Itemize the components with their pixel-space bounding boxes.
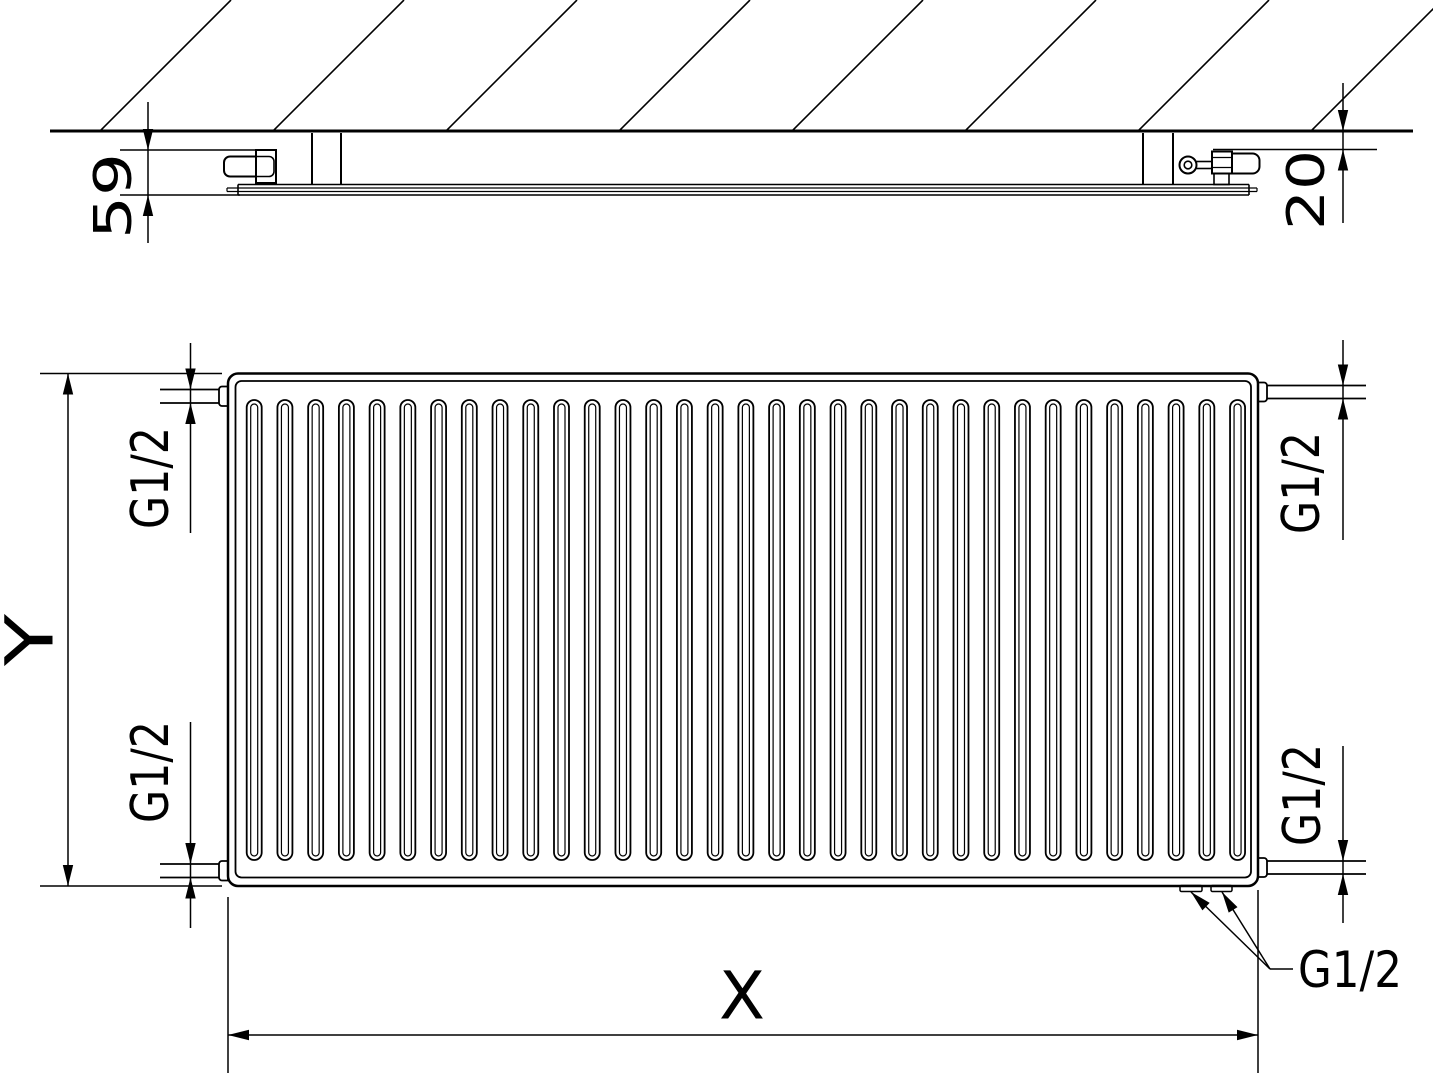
wall-gap-dim-label: 20 — [1277, 150, 1337, 230]
thread-bottom-tappings-label: G1/2 — [1298, 941, 1402, 999]
height-dim-label: Y — [0, 613, 69, 667]
thread-dim-top-right-label: G1/2 — [1272, 432, 1332, 534]
thread-dim-top-right: G1/2 — [1272, 340, 1348, 540]
radiator-drawing-svg: 5920YXG1/2G1/2G1/2G1/2G1/2 — [0, 0, 1433, 1073]
dimension-height-Y: Y — [0, 374, 222, 887]
dimension-wall-gap-20: 20 — [1213, 83, 1377, 230]
wall-hatching — [100, 0, 1433, 131]
width-dim-label: X — [719, 958, 765, 1035]
thread-dim-bottom-right-label: G1/2 — [1273, 744, 1333, 846]
convector-channels — [247, 400, 1245, 860]
radiator-front-view — [228, 374, 1258, 887]
wall-brackets — [312, 133, 1173, 185]
thread-label-bottom-tappings: G1/2 — [1191, 892, 1402, 999]
technical-drawing-canvas: 5920YXG1/2G1/2G1/2G1/2G1/2 — [0, 0, 1433, 1073]
radiator-panel-top-view — [227, 185, 1257, 196]
left-plug-top-view — [224, 150, 276, 183]
thread-dim-bottom-left-label: G1/2 — [121, 721, 181, 823]
depth-dim-label: 59 — [84, 153, 144, 239]
connection-stubs — [160, 383, 1366, 881]
thread-dim-top-left-label: G1/2 — [121, 427, 181, 529]
dimension-width-X: X — [228, 890, 1258, 1073]
thread-dim-bottom-right: G1/2 — [1273, 744, 1348, 923]
dimension-depth-59: 59 — [84, 102, 256, 243]
thread-dim-bottom-left: G1/2 — [121, 721, 196, 928]
air-vent-plug-top-view — [1180, 152, 1260, 185]
thread-dim-top-left: G1/2 — [121, 343, 196, 533]
